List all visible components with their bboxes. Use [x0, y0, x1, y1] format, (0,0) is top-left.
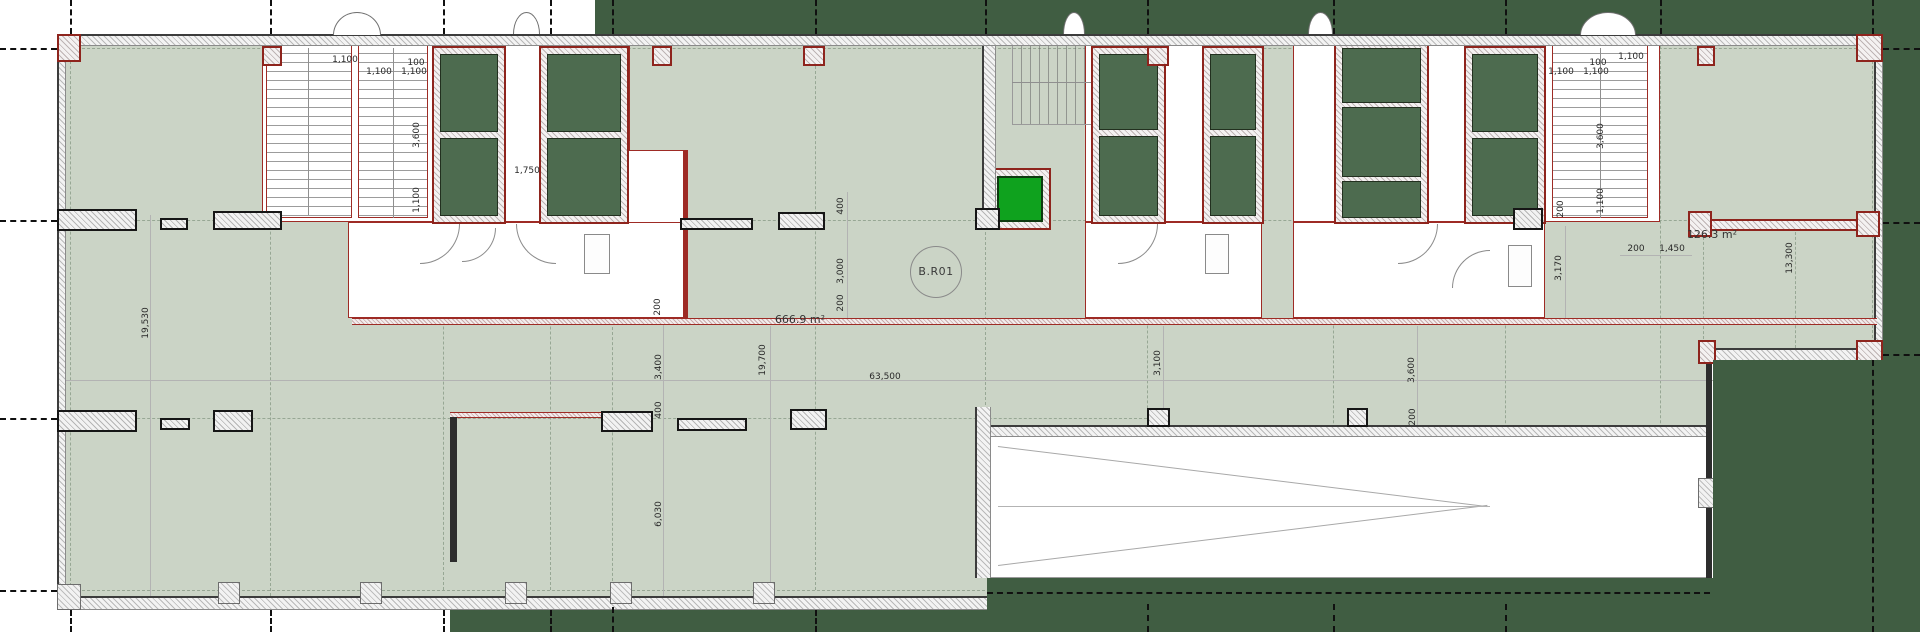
dim-label: 3,600 — [1596, 123, 1606, 149]
grid-axis-v — [612, 607, 614, 632]
grid-line-v — [1795, 232, 1796, 348]
column — [218, 582, 240, 604]
dim-label: 1,100 — [1583, 67, 1609, 77]
dim-line-h — [1620, 255, 1692, 256]
wall-segment — [677, 418, 747, 431]
dim-line — [150, 215, 151, 596]
grid-axis-v — [1333, 0, 1335, 34]
dim-label: 13,300 — [1785, 242, 1795, 274]
grid-axis-h — [1883, 222, 1920, 224]
dim-label: 3,600 — [412, 122, 422, 148]
wall-left-mid — [450, 412, 603, 418]
dim-label: 3,000 — [836, 258, 846, 284]
grid-axis-v — [815, 0, 817, 34]
dim-label: 1,750 — [514, 166, 540, 176]
wall-segment — [160, 418, 190, 430]
wall-shaft-vertical — [982, 46, 996, 230]
entry-door-arc — [333, 12, 381, 35]
grid-axis-v — [1872, 0, 1874, 34]
dim-label: 1,100 — [366, 67, 392, 77]
wall-right — [1874, 34, 1883, 360]
wall-segment — [680, 218, 753, 230]
grid-line-v — [1703, 232, 1704, 344]
grid-axis-v — [1872, 360, 1874, 632]
grid-axis-v — [550, 610, 552, 632]
grid-axis-v — [70, 0, 72, 34]
grid-axis-h — [1883, 48, 1920, 50]
dim-label: 6,030 — [654, 501, 664, 527]
grid-line-v — [70, 46, 71, 596]
terrain-bottom — [450, 610, 987, 632]
column — [57, 34, 81, 62]
wall-segment — [160, 218, 188, 230]
wall-segment — [975, 208, 1000, 230]
wall-segment — [213, 410, 253, 432]
dim-label: 3,400 — [654, 354, 664, 380]
column — [262, 46, 282, 66]
grid-axis-h — [0, 48, 57, 50]
wc-fixture — [1205, 234, 1229, 274]
grid-axis-v — [550, 0, 552, 34]
grid-axis-v — [1505, 0, 1507, 34]
stair-mid-line — [308, 48, 309, 215]
elevator-shaft — [1472, 54, 1538, 132]
area-label: 126.3 m² — [1687, 230, 1737, 240]
grid-axis-h — [1883, 354, 1920, 356]
wall-ramp-left — [975, 407, 991, 578]
elevator-shaft — [1342, 107, 1421, 177]
lobby-right-a — [1085, 222, 1262, 318]
terrain-bottom-right — [1713, 360, 1883, 632]
vehicle-ramp — [987, 425, 1710, 578]
elevator-shaft — [1099, 136, 1158, 216]
grid-axis-v — [70, 610, 72, 632]
dim-label: 1,100 — [1548, 67, 1574, 77]
column — [1697, 46, 1715, 66]
column — [1147, 46, 1169, 66]
elevator-shaft — [440, 54, 498, 132]
grid-axis-v — [1147, 604, 1149, 632]
elevator-shaft — [1210, 54, 1256, 130]
wc-fixture — [584, 234, 610, 274]
dim-label: 1,450 — [1659, 244, 1685, 254]
wall-segment — [778, 212, 825, 230]
grid-axis-v — [443, 610, 445, 632]
wall-segment — [1513, 208, 1543, 230]
grid-axis-h — [0, 590, 57, 592]
dim-label: 3,600 — [1407, 357, 1417, 383]
dim-label: 400 — [654, 401, 664, 418]
dim-label: 1,100 — [1618, 52, 1644, 62]
dim-label: 63,500 — [869, 372, 901, 382]
dim-label: 400 — [836, 197, 846, 214]
wall-lobby-right — [683, 150, 688, 318]
column — [505, 582, 527, 604]
dim-label: 1,100 — [332, 55, 358, 65]
terrain-top — [595, 0, 1920, 34]
wc-fixture — [1508, 245, 1532, 287]
wall-ramp-right — [1706, 358, 1712, 578]
column — [610, 582, 632, 604]
wall-segment — [57, 410, 137, 432]
dim-label: 200 — [836, 294, 846, 311]
grid-axis-h — [0, 220, 57, 222]
elevator-shaft — [440, 138, 498, 216]
area-label: 666.9 m² — [775, 315, 825, 325]
column — [360, 582, 382, 604]
grid-axis-h — [987, 592, 1710, 594]
grid-axis-v — [270, 610, 272, 632]
grid-axis-v — [815, 610, 817, 632]
floor-plan-canvas: 1,1001,1001001,1003,6001,1001,75019,5302… — [0, 0, 1920, 632]
column — [652, 46, 672, 66]
dim-label: 200 — [653, 298, 663, 315]
dim-line — [847, 192, 848, 318]
dim-label: 1,100 — [412, 187, 422, 213]
entry-door-arc — [513, 12, 540, 34]
elevator-shaft — [547, 138, 621, 216]
elevator-shaft — [1210, 136, 1256, 216]
stair-mid-line — [393, 48, 394, 218]
stair-left-a — [266, 44, 352, 218]
dim-label: 200 — [1556, 200, 1566, 217]
floor-slab-mid — [57, 357, 1710, 425]
ramp-center-line — [998, 506, 1490, 507]
grid-axis-v — [985, 0, 987, 34]
wall-segment — [1147, 408, 1170, 427]
column — [1856, 211, 1880, 237]
grid-line-v — [985, 232, 986, 420]
wall-segment — [213, 211, 282, 230]
elevator-shaft — [547, 54, 621, 132]
wall-left — [57, 34, 66, 610]
dim-label: 200 — [1408, 408, 1418, 425]
wall-segment — [1347, 408, 1368, 427]
dim-label: 3,170 — [1554, 255, 1564, 281]
grid-axis-v — [270, 0, 272, 34]
room-label: B.R01 — [918, 267, 953, 277]
elevator-shaft — [1342, 181, 1421, 218]
dim-label: 19,700 — [758, 344, 768, 376]
dim-label: 200 — [1627, 244, 1644, 254]
grid-axis-v — [1660, 0, 1662, 34]
dim-label: 1,100 — [1596, 188, 1606, 214]
grid-axis-h — [0, 418, 57, 420]
dim-label: 3,100 — [1153, 350, 1163, 376]
grid-line-v — [1872, 46, 1873, 348]
wall-segment — [790, 409, 827, 430]
dim-line — [770, 326, 771, 596]
dim-label: 19,530 — [141, 307, 151, 339]
dim-line-h — [57, 380, 1877, 381]
grid-axis-v — [1333, 604, 1335, 632]
grid-axis-v — [612, 0, 614, 34]
elevator-shaft — [1472, 138, 1538, 216]
grid-axis-v — [1505, 604, 1507, 632]
wall-lower-left-vertical — [450, 417, 457, 562]
column — [753, 582, 775, 604]
elevator-shaft — [1342, 48, 1421, 103]
grid-axis-v — [443, 0, 445, 34]
dim-label: 1,100 — [401, 67, 427, 77]
wall-segment — [57, 209, 137, 231]
terrain-under-ramp — [987, 578, 1713, 632]
column — [803, 46, 825, 66]
wall-top — [57, 34, 1883, 46]
lift-cab-green — [997, 176, 1043, 222]
grid-axis-v — [1147, 0, 1149, 34]
wall-666-boundary — [352, 318, 1877, 325]
column — [57, 584, 81, 610]
wall-segment — [601, 411, 653, 432]
terrain-right — [1883, 0, 1920, 632]
column — [1856, 34, 1883, 62]
dim-line — [1565, 226, 1566, 318]
